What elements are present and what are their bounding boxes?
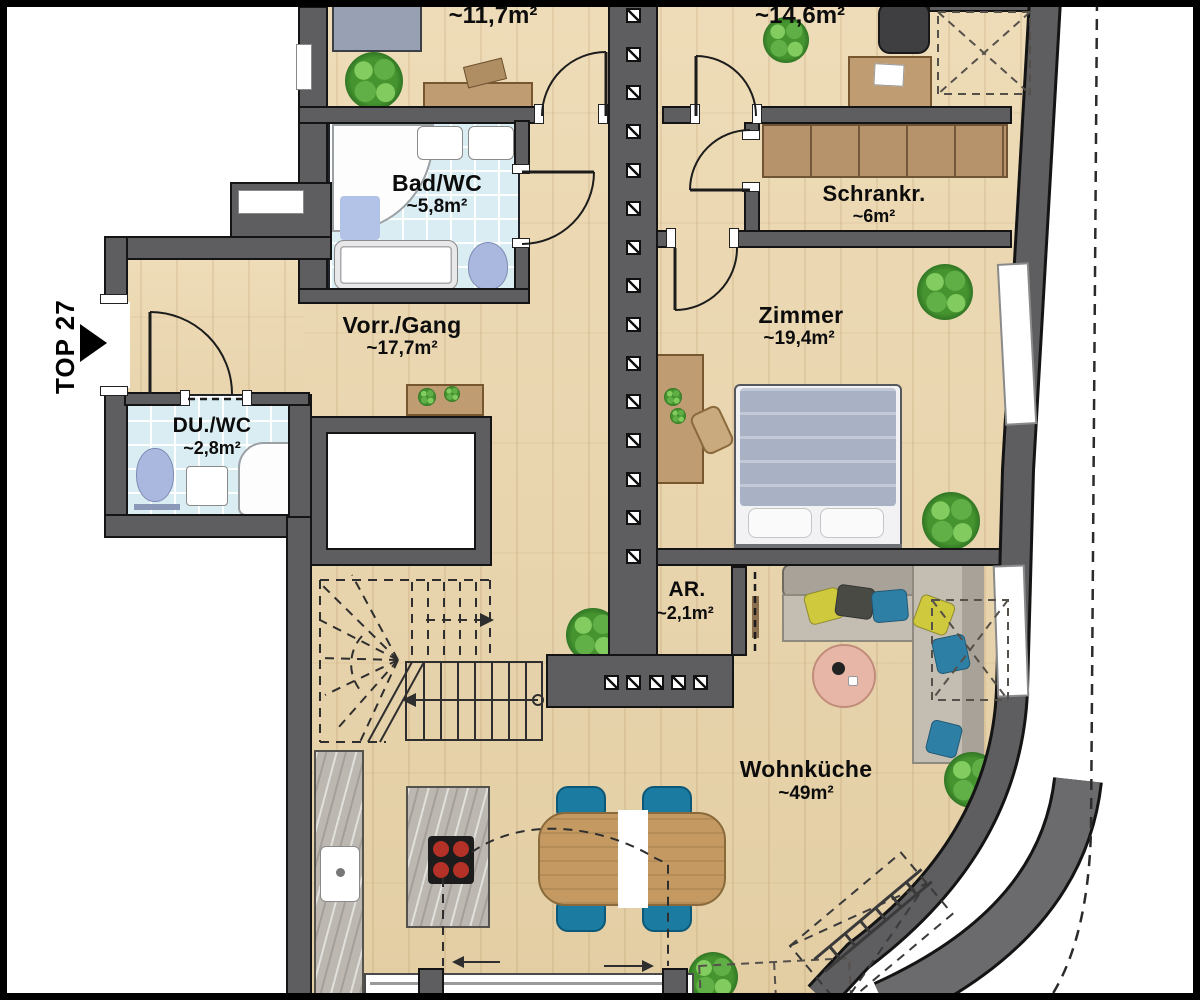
room-label: DU./WC [173, 414, 252, 438]
laptop [873, 63, 904, 87]
pillow [931, 633, 972, 675]
flue-hatch-square [626, 240, 641, 255]
bed [332, 0, 422, 52]
entry-arrow-icon [80, 324, 107, 362]
door-post [180, 390, 190, 406]
toilet [136, 448, 174, 502]
flue-hatch-square [626, 201, 641, 216]
room-label-area: ~19,4m² [763, 328, 834, 350]
window [296, 44, 312, 90]
pillow [820, 508, 884, 538]
burner [433, 841, 449, 857]
door-post [512, 164, 530, 174]
toilet-shelf [134, 504, 180, 510]
wall [744, 188, 760, 236]
wall [104, 514, 312, 538]
door-post [598, 104, 608, 124]
room-label-area: ~2,1m² [656, 603, 714, 624]
pillow [748, 508, 812, 538]
floor-plan: ~11,7m² ~14,6m² Bad/WC ~5,8m² Schrankr. … [0, 0, 1200, 1000]
bath-mat [340, 196, 380, 240]
wall [656, 548, 1012, 566]
flue-hatch-square [626, 394, 641, 409]
flue-hatch-square [693, 675, 708, 690]
door-post [690, 104, 700, 124]
plant [444, 386, 460, 402]
door-post [742, 182, 760, 192]
flue-hatch-square [626, 163, 641, 178]
chimney-flues [604, 674, 708, 690]
burner [453, 841, 469, 857]
pillow [871, 588, 910, 623]
flue-hatch-square [626, 472, 641, 487]
wall [286, 514, 312, 1000]
elevator-shaft [312, 418, 490, 564]
window [238, 190, 304, 214]
flue-hatch-square [626, 510, 641, 525]
cup [848, 676, 858, 686]
sliding-window [364, 973, 694, 1000]
kettle [832, 662, 845, 675]
sink [186, 466, 228, 506]
wall [288, 394, 312, 518]
wall [928, 0, 1032, 12]
plant [664, 388, 682, 406]
plant [917, 264, 973, 320]
door-post [729, 228, 739, 248]
roof-outline-dashed [1046, 0, 1097, 1000]
flue-hatch-square [626, 317, 641, 332]
door-post [534, 104, 544, 124]
flue-hatch-square [626, 433, 641, 448]
sink [417, 126, 463, 160]
wall [756, 106, 1012, 124]
burner [433, 862, 449, 878]
flue-hatch-square [626, 278, 641, 293]
flue-hatch-square [626, 675, 641, 690]
room-label-area: ~11,7m² [449, 2, 538, 30]
room-label: Wohnküche [740, 756, 873, 783]
door-post [752, 104, 762, 124]
unit-label: TOP 27 [50, 299, 81, 394]
window-post [418, 968, 444, 1000]
room-label-area: ~5,8m² [407, 196, 468, 218]
wardrobe [762, 124, 1008, 178]
flue-hatch-square [626, 47, 641, 62]
pillow [834, 584, 876, 621]
wall [124, 392, 184, 406]
flue-hatch-square [649, 675, 664, 690]
flue-hatch-square [626, 124, 641, 139]
shelf [752, 596, 759, 638]
room-label-area: ~49m² [778, 783, 833, 805]
room-label: Bad/WC [392, 170, 482, 197]
door-post [100, 294, 128, 304]
faucet [336, 868, 345, 877]
plant [418, 388, 436, 406]
room-label-area: ~14,6m² [755, 2, 845, 30]
wall [733, 230, 1012, 248]
plant [345, 52, 403, 110]
room-label: Zimmer [759, 302, 844, 329]
plant [944, 752, 1000, 808]
wall [248, 392, 310, 406]
sink [468, 126, 514, 160]
coffee-table [812, 644, 876, 708]
door-post [512, 238, 530, 248]
wall [298, 288, 530, 304]
flue-hatch-square [626, 85, 641, 100]
plant [688, 952, 738, 1000]
room-label: Vorr./Gang [343, 312, 462, 339]
door-post [666, 228, 676, 248]
wall [104, 236, 332, 260]
window-post [662, 968, 688, 1000]
room-label-area: ~2,8m² [183, 438, 241, 459]
flue-hatch-square [671, 675, 686, 690]
flue-hatch-square [604, 675, 619, 690]
room-label: Schrankr. [823, 181, 926, 207]
bathtub [334, 240, 458, 290]
bed-blanket [740, 388, 896, 506]
door-post [100, 386, 128, 396]
door-post [742, 130, 760, 140]
toilet [468, 242, 508, 290]
room-label-area: ~6m² [853, 206, 896, 227]
chimney-flues [612, 8, 654, 564]
burner [453, 862, 469, 878]
plant [670, 408, 686, 424]
plant [922, 492, 980, 550]
flue-hatch-square [626, 549, 641, 564]
desk-chair [878, 2, 930, 54]
flue-hatch-square [626, 8, 641, 23]
table-runner [618, 810, 648, 908]
room-label: AR. [668, 578, 705, 602]
room-label-area: ~17,7m² [366, 338, 437, 360]
wall [731, 566, 747, 656]
flue-hatch-square [626, 356, 641, 371]
door-post [242, 390, 252, 406]
wall [298, 106, 542, 124]
